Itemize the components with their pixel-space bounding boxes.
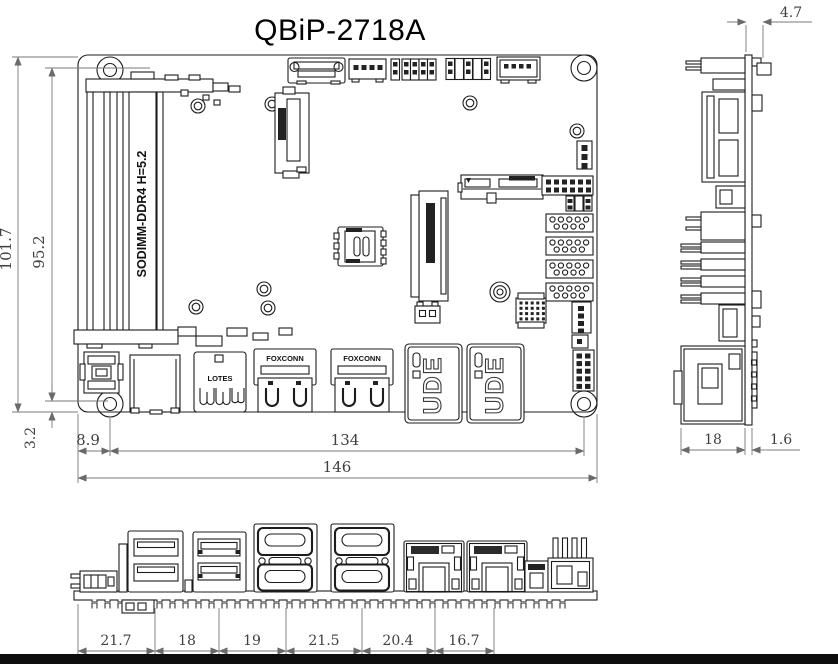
- usb-stack-front-2: [185, 532, 246, 592]
- led-window: [474, 546, 502, 554]
- dim-mount-span-h: 134: [331, 431, 360, 449]
- pin-connector-5pin-top: [497, 57, 540, 83]
- com-header: [546, 237, 593, 255]
- usb-stack-front-1: [128, 531, 183, 592]
- rj45-front-1: [404, 541, 464, 592]
- hdmi-stack-front-2: [331, 524, 394, 592]
- dim-connector-depth: 18: [704, 432, 722, 448]
- hdmi-connector-top-1: FOXCONN: [254, 349, 316, 412]
- dc-jack-front: [71, 571, 117, 592]
- connector-label-smudge: [426, 203, 435, 263]
- small-connector-front: [525, 561, 548, 592]
- mpcie-label-smudge: [509, 176, 535, 181]
- front-view: 21.7 18 19 21.5 20.4 16.7: [71, 524, 597, 657]
- dim-overall-height: 101.7: [0, 228, 15, 271]
- rj45-front-2: [467, 541, 527, 592]
- mini-pcie-slot: [458, 175, 546, 203]
- pin-header-4pin-top: [349, 59, 386, 82]
- lan-brand-label: UDE: [481, 356, 509, 415]
- sim-card-slot: [334, 227, 386, 266]
- dim-segment-1: 21.7: [100, 633, 131, 649]
- dim-segment-4: 21.5: [308, 633, 339, 649]
- mechanical-drawing-page: QBiP-2718A: [0, 0, 838, 664]
- pin-connector-4pin-vertical: [572, 302, 591, 334]
- dim-pcb-thickness: 1.6: [770, 432, 792, 448]
- usb-connector-top: LOTES: [194, 352, 246, 412]
- com-header: [546, 283, 593, 301]
- hdmi-brand-label: FOXCONN: [343, 354, 381, 363]
- led-window: [411, 546, 439, 554]
- lan-connector-top-1: UDE: [405, 344, 462, 423]
- dim-segment-2: 18: [178, 633, 196, 649]
- dim-segment-3: 19: [243, 633, 261, 649]
- m2-label-smudge: [278, 108, 286, 140]
- sodimm-label: SODIMM-DDR4 H=5.2: [135, 151, 149, 278]
- dim-mount-span-v: 95.2: [30, 235, 48, 268]
- jumper-block-a: [391, 59, 436, 80]
- page-title: QBiP-2718A: [254, 14, 426, 47]
- sim-label-smudge-2: [346, 259, 360, 263]
- bottom-bar: [0, 654, 838, 664]
- dim-mount-offset-v: 3.2: [23, 427, 39, 449]
- jumper-block-b: [446, 59, 491, 80]
- lan-brand-label: UDE: [419, 356, 447, 415]
- com-header: [546, 214, 593, 232]
- m2-slot: [275, 87, 309, 178]
- sata-connector: [288, 58, 345, 84]
- bracket-sliver: [119, 544, 127, 592]
- pin-header-3pin: [577, 141, 592, 169]
- usb-brand-label: LOTES: [207, 374, 232, 383]
- solder-pin-row: [86, 600, 570, 609]
- small-connector: [572, 335, 588, 348]
- audio-box-connector: [80, 352, 123, 393]
- jumper-trio: [566, 196, 592, 211]
- dim-rear-protrusion: 4.7: [780, 5, 802, 21]
- bios-socket: [516, 293, 546, 328]
- dim-segment-6: 16.7: [448, 633, 479, 649]
- lan-connector-top-2: UDE: [467, 344, 524, 423]
- drawing-canvas: QBiP-2718A: [0, 0, 838, 664]
- dim-mount-offset-h: 8.9: [76, 431, 100, 449]
- pin-header-2x6: [542, 176, 593, 195]
- lan-side-profile: [674, 346, 745, 424]
- under-board-component: [122, 600, 154, 613]
- sim-label-smudge: [346, 228, 362, 232]
- pcb-cross-section: [745, 55, 752, 425]
- dim-segment-5: 20.4: [382, 633, 413, 649]
- power-connector-front: [548, 538, 593, 592]
- hdmi-connector-top-2: FOXCONN: [331, 349, 393, 412]
- hdmi-stack-front-1: [254, 524, 317, 592]
- side-view: 4.7 18 1.6: [674, 5, 812, 455]
- rear-bracket: [752, 58, 771, 75]
- card-edge-connector: [411, 191, 448, 306]
- com-header: [546, 260, 593, 278]
- hdmi-brand-label: FOXCONN: [266, 354, 304, 363]
- top-view: SODIMM-DDR4 H=5.2: [0, 55, 597, 483]
- pin-header-2x5: [573, 350, 594, 391]
- dim-overall-width: 146: [323, 458, 352, 476]
